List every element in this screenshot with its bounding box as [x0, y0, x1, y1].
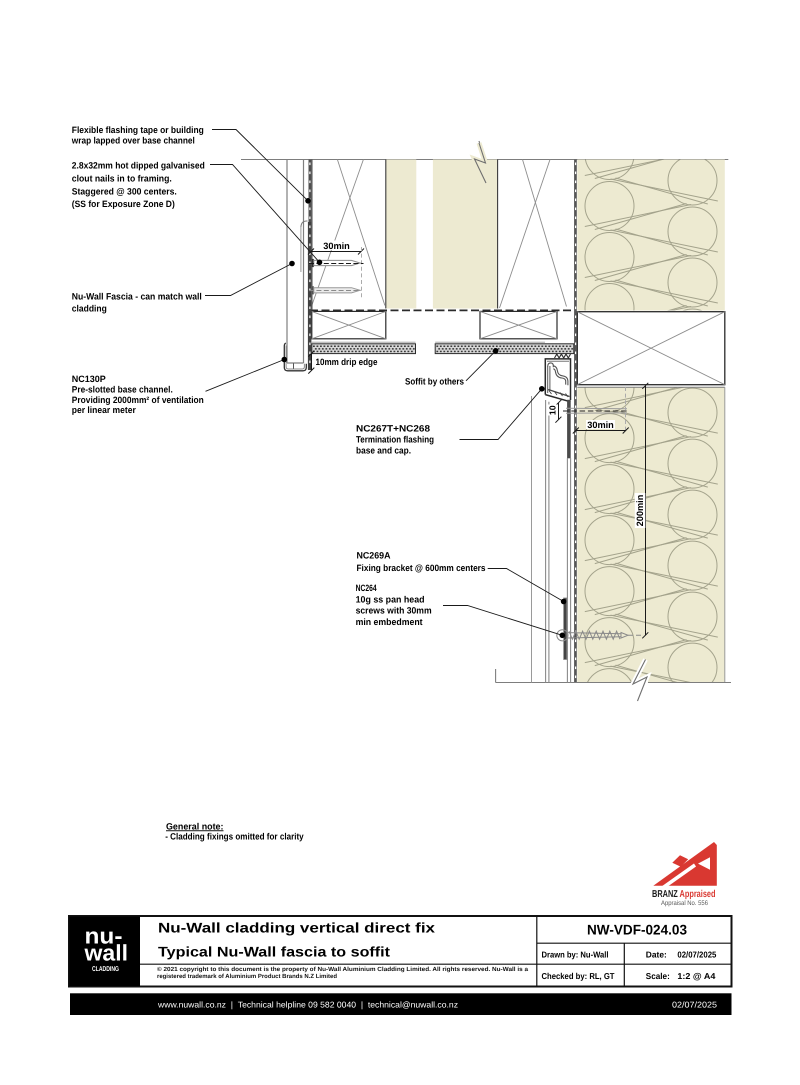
svg-text:Staggered @ 300 centers.: Staggered @ 300 centers.: [72, 186, 177, 196]
svg-text:(SS for Exposure Zone D): (SS for Exposure Zone D): [72, 199, 175, 209]
svg-text:10: 10: [548, 405, 558, 415]
svg-text:1:2 @ A4: 1:2 @ A4: [677, 971, 715, 981]
svg-text:Soffit by others: Soffit by others: [405, 377, 464, 387]
svg-text:per linear meter: per linear meter: [72, 405, 136, 415]
svg-text:Pre-slotted base channel.: Pre-slotted base channel.: [72, 384, 173, 394]
svg-text:Providing 2000mm² of ventilati: Providing 2000mm² of ventilation: [72, 395, 204, 405]
svg-text:Scale:: Scale:: [646, 971, 670, 981]
svg-text:registered trademark of Alumin: registered trademark of Aluminium Produc…: [157, 973, 337, 980]
svg-text:min embedment: min embedment: [356, 617, 423, 627]
svg-text:Flexible flashing tape or buil: Flexible flashing tape or building: [72, 125, 204, 135]
svg-text:Checked by: RL, GT: Checked by: RL, GT: [542, 971, 616, 981]
svg-text:BRANZ Appraised: BRANZ Appraised: [652, 889, 716, 900]
svg-text:NC264: NC264: [356, 583, 378, 593]
svg-text:wall: wall: [83, 940, 128, 965]
svg-text:Appraisal No. 556: Appraisal No. 556: [661, 900, 708, 907]
svg-text:NW-VDF-024.03: NW-VDF-024.03: [587, 922, 687, 938]
svg-text:clout nails in to framing.: clout nails in to framing.: [72, 173, 172, 183]
svg-text:NC267T+NC268: NC267T+NC268: [356, 424, 430, 434]
svg-text:cladding: cladding: [72, 304, 107, 314]
svg-text:10g ss pan head: 10g ss pan head: [356, 594, 425, 604]
svg-text:Nu-Wall Fascia - can match wal: Nu-Wall Fascia - can match wall: [72, 292, 202, 302]
svg-text:Fixing bracket @ 600mm centers: Fixing bracket @ 600mm centers: [357, 563, 486, 573]
svg-text:200min: 200min: [635, 494, 645, 526]
svg-text:2.8x32mm hot dipped galvanised: 2.8x32mm hot dipped galvanised: [72, 161, 205, 171]
svg-text:NC269A: NC269A: [357, 551, 391, 561]
svg-text:www.nuwall.co.nz | Technical: www.nuwall.co.nz | Technical helpline 09…: [157, 1000, 458, 1010]
svg-text:10mm drip edge: 10mm drip edge: [316, 357, 378, 367]
svg-text:Nu-Wall cladding vertical dire: Nu-Wall cladding vertical direct fix: [158, 919, 435, 935]
svg-text:NC130P: NC130P: [72, 374, 106, 384]
svg-text:02/07/2025: 02/07/2025: [672, 1000, 717, 1010]
svg-text:wrap lapped over base channel: wrap lapped over base channel: [71, 135, 195, 145]
svg-text:Termination flashing: Termination flashing: [356, 434, 434, 444]
svg-text:© 2021 copyright to this docum: © 2021 copyright to this document is the…: [157, 966, 529, 973]
svg-text:- Cladding fixings omitted for: - Cladding fixings omitted for clarity: [165, 832, 304, 842]
svg-text:Drawn by: Nu-Wall: Drawn by: Nu-Wall: [542, 950, 609, 960]
svg-text:General note:: General note:: [166, 821, 224, 831]
svg-text:screws with 30mm: screws with 30mm: [356, 606, 432, 616]
svg-text:Typical Nu-Wall fascia to soff: Typical Nu-Wall fascia to soffit: [158, 944, 390, 960]
svg-text:30min: 30min: [587, 420, 614, 430]
svg-text:base and cap.: base and cap.: [356, 445, 411, 455]
svg-text:CLADDING: CLADDING: [92, 966, 119, 973]
svg-text:Date:: Date:: [646, 950, 667, 960]
svg-text:02/07/2025: 02/07/2025: [677, 950, 716, 960]
svg-text:30min: 30min: [323, 241, 350, 251]
